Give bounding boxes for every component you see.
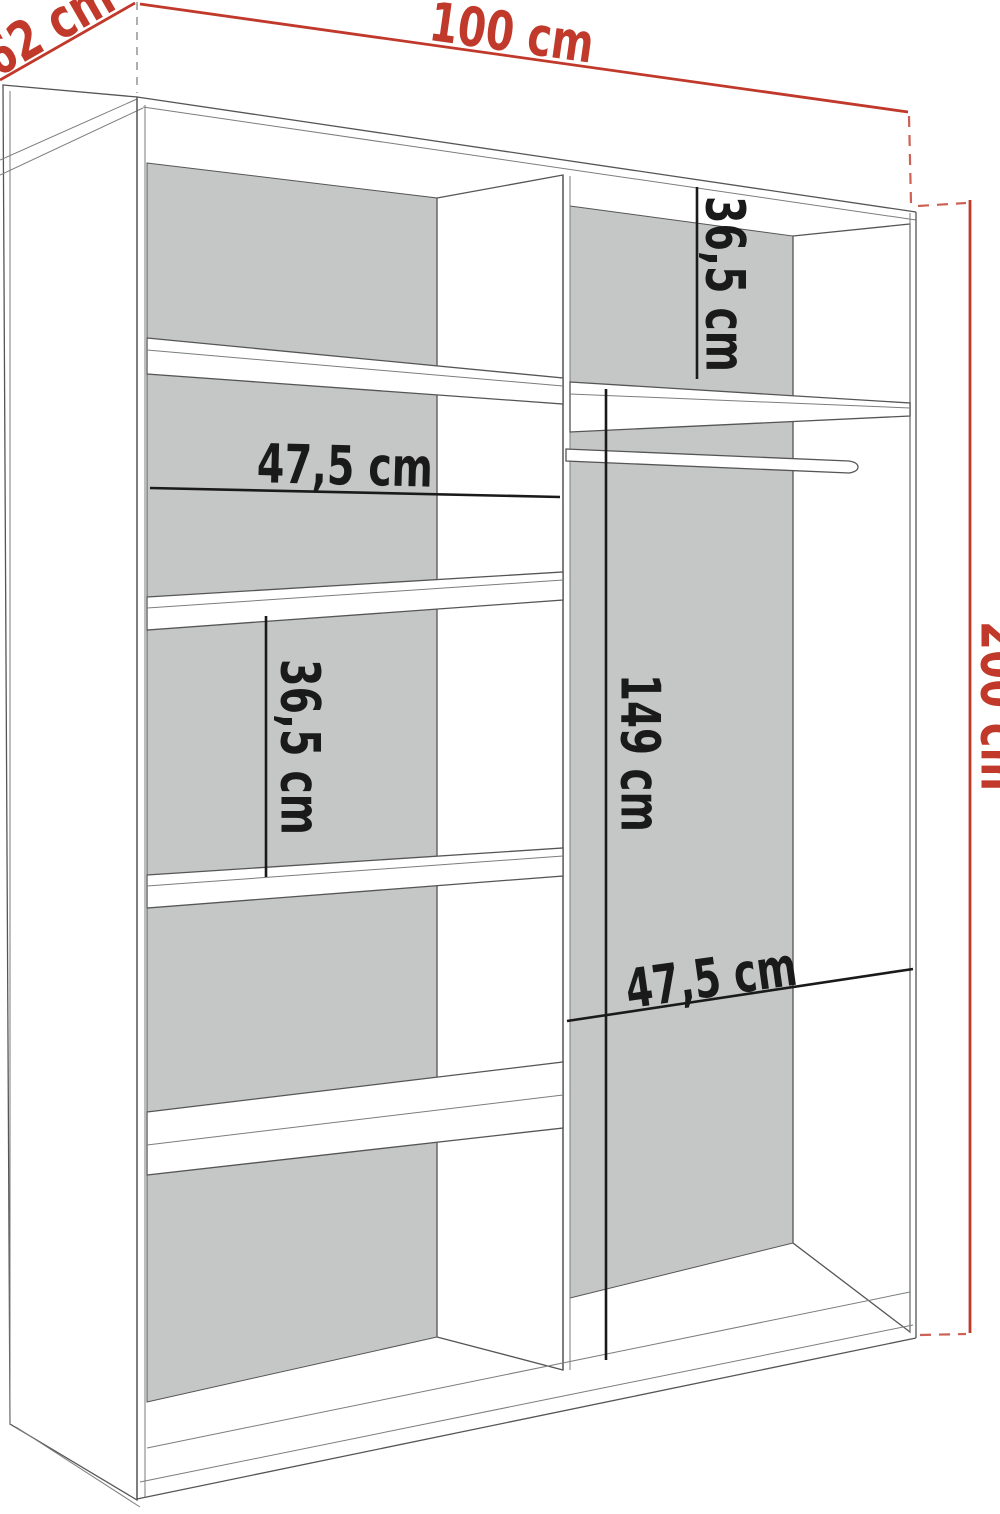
depth-dimension-label: 62 cm [0,0,125,89]
height-dimension-bottom-dashed [920,1334,966,1335]
central-divider-face [437,175,563,1370]
left-middle-section-label: 36,5 cm [269,659,332,835]
wardrobe-dimension-diagram: 62 cm 100 cm 200 cm 36,5 cm 47,5 cm 36,5… [0,0,1000,1514]
right-side-panel-inner-face [793,224,910,1332]
hanging-space-height-label: 149 cm [609,674,672,832]
left-section-width-label: 47,5 cm [256,432,434,500]
width-dimension-drop-dashed [909,116,911,203]
right-compartment-back-panel [570,206,793,1298]
left-side-panel [3,85,137,1500]
height-dimension-label: 200 cm [969,621,1000,791]
right-top-section-label: 36,5 cm [694,196,757,372]
diagram-canvas: 62 cm 100 cm 200 cm 36,5 cm 47,5 cm 36,5… [0,0,1000,1514]
height-dimension-top-dashed [918,203,966,206]
width-dimension-label: 100 cm [426,0,598,76]
wardrobe-body [0,2,916,1507]
